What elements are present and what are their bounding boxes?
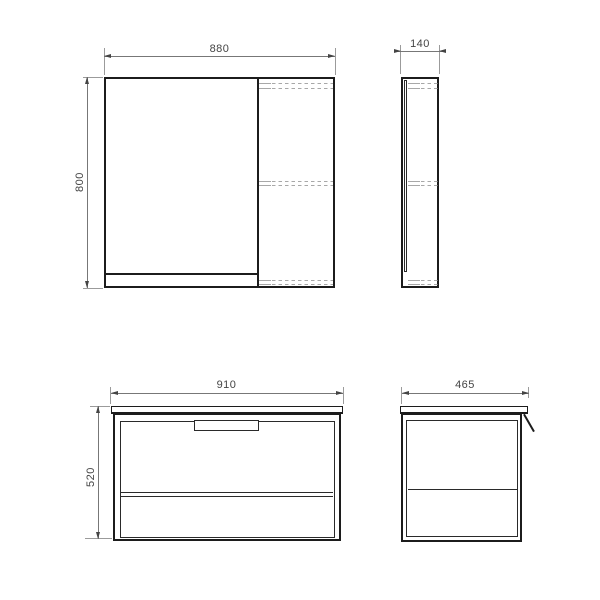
- mirror-front-outline: [104, 77, 335, 288]
- dimension-line-880: [104, 56, 335, 57]
- hidden-shelf-line: [259, 284, 333, 285]
- hidden-shelf-line: [408, 181, 438, 182]
- dim-label-800: 800: [74, 162, 86, 202]
- arrowhead-icon: [111, 391, 118, 395]
- mirror-door-profile: [404, 80, 407, 272]
- countertop-edge-tick: [523, 413, 535, 431]
- hidden-shelf-line: [259, 83, 333, 84]
- hidden-shelf-line: [408, 83, 438, 84]
- drawer-handle-recess: [194, 420, 259, 431]
- mirror-front-bottom-shelf-line: [106, 273, 257, 275]
- arrowhead-icon: [522, 391, 529, 395]
- extension-line: [90, 406, 110, 407]
- drawer-divider-line: [408, 489, 517, 490]
- drawer-divider-line: [121, 492, 333, 493]
- vanity-side-inner-frame: [406, 420, 518, 538]
- dim-label-465: 465: [402, 379, 529, 391]
- dimension-line-465: [402, 393, 529, 394]
- hidden-shelf-line: [408, 280, 438, 281]
- dimension-line-140: [395, 51, 445, 52]
- hidden-shelf-line: [259, 280, 333, 281]
- dim-label-910: 910: [110, 379, 343, 391]
- arrowhead-icon: [96, 406, 100, 413]
- arrowhead-icon: [336, 391, 343, 395]
- dim-label-880: 880: [104, 43, 335, 55]
- drawer-divider-line: [121, 496, 333, 497]
- dim-label-140: 140: [395, 38, 445, 50]
- hidden-shelf-line: [408, 185, 438, 186]
- dim-label-520: 520: [85, 457, 97, 497]
- arrowhead-icon: [85, 281, 89, 288]
- dimension-line-520: [98, 406, 99, 539]
- hidden-shelf-line: [408, 88, 438, 89]
- hidden-shelf-line: [259, 88, 333, 89]
- mirror-front-door-divider: [257, 77, 260, 288]
- arrowhead-icon: [402, 391, 409, 395]
- technical-drawing-canvas: 880 800 140: [0, 0, 600, 600]
- vanity-front-inner-frame: [120, 421, 335, 538]
- dimension-line-800: [87, 77, 88, 288]
- hidden-shelf-line: [259, 185, 333, 186]
- arrowhead-icon: [85, 77, 89, 84]
- hidden-shelf-line: [408, 284, 438, 285]
- arrowhead-icon: [96, 532, 100, 539]
- dimension-line-910: [111, 393, 344, 394]
- hidden-shelf-line: [259, 181, 333, 182]
